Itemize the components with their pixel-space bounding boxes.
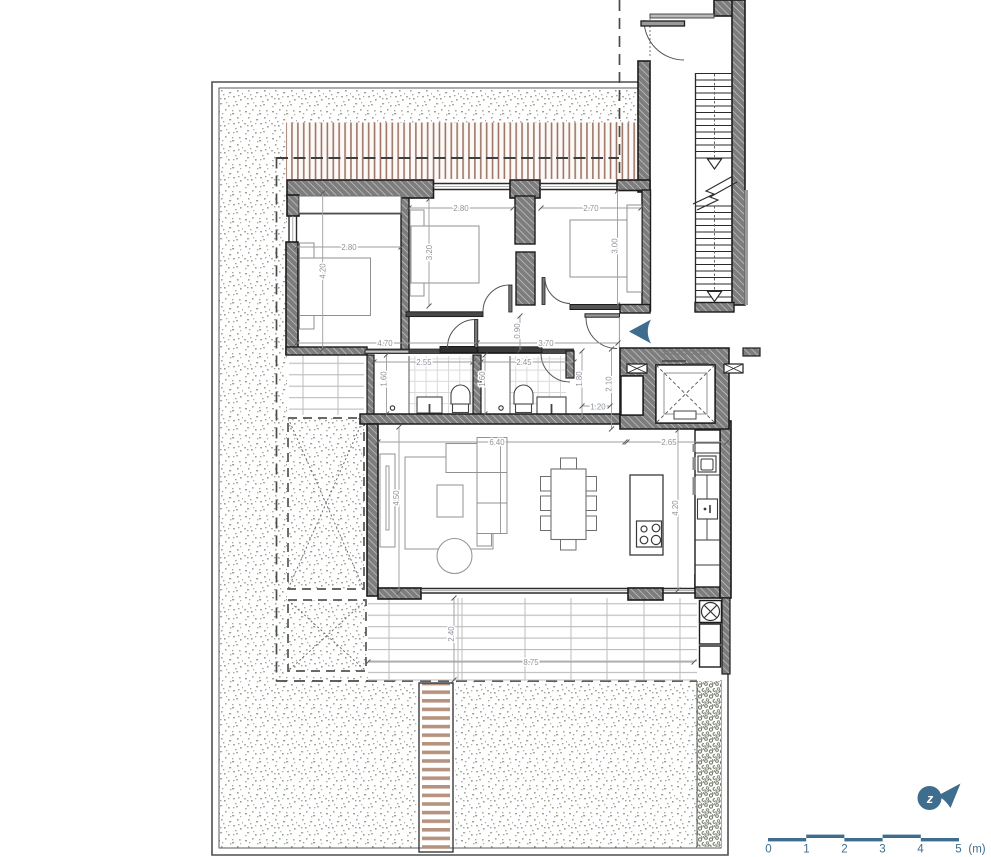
svg-text:1.80: 1.80 <box>575 371 584 387</box>
svg-text:8.75: 8.75 <box>523 658 539 667</box>
svg-text:2.55: 2.55 <box>416 358 432 367</box>
svg-text:(m): (m) <box>968 844 985 856</box>
svg-text:2.10: 2.10 <box>605 376 614 392</box>
svg-text:2.70: 2.70 <box>583 204 599 213</box>
svg-text:3.20: 3.20 <box>425 244 434 260</box>
svg-text:1.60: 1.60 <box>478 371 487 387</box>
svg-text:3.00: 3.00 <box>611 238 620 254</box>
svg-text:0.90: 0.90 <box>513 323 522 339</box>
svg-text:1: 1 <box>803 844 809 856</box>
svg-text:6.40: 6.40 <box>489 438 505 447</box>
svg-text:2: 2 <box>841 844 847 856</box>
svg-text:1.60: 1.60 <box>380 371 389 387</box>
svg-text:z: z <box>926 791 934 806</box>
svg-text:3.70: 3.70 <box>538 339 554 348</box>
svg-text:2.45: 2.45 <box>516 358 532 367</box>
svg-text:2.65: 2.65 <box>661 438 677 447</box>
svg-text:2.40: 2.40 <box>447 626 456 642</box>
svg-text:4.70: 4.70 <box>377 339 393 348</box>
svg-text:0: 0 <box>765 844 771 856</box>
svg-text:4.20: 4.20 <box>319 263 328 279</box>
svg-text:4.50: 4.50 <box>392 490 401 506</box>
svg-text:1.20: 1.20 <box>590 403 606 412</box>
svg-text:2.80: 2.80 <box>341 243 357 252</box>
svg-text:5: 5 <box>955 844 961 856</box>
svg-text:3: 3 <box>879 844 885 856</box>
svg-text:4: 4 <box>917 844 924 856</box>
svg-text:4.20: 4.20 <box>671 500 680 516</box>
svg-text:2.80: 2.80 <box>453 204 469 213</box>
